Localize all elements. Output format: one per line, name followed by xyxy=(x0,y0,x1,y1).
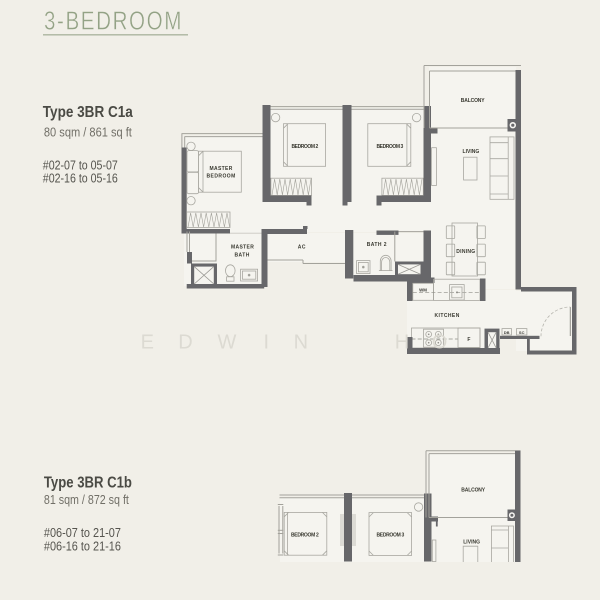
svg-text:BEDROOM 3: BEDROOM 3 xyxy=(377,144,404,150)
svg-text:I: I xyxy=(264,331,270,353)
svg-text:BEDROOM 3: BEDROOM 3 xyxy=(377,532,405,538)
svg-text:80 sqm / 861 sq ft: 80 sqm / 861 sq ft xyxy=(44,125,132,140)
svg-text:E: E xyxy=(141,331,154,353)
svg-text:N: N xyxy=(294,331,308,353)
svg-text:O: O xyxy=(432,331,448,353)
svg-text:BALCONY: BALCONY xyxy=(461,487,485,493)
svg-text:DINING: DINING xyxy=(456,249,475,255)
svg-text:BEDROOM 2: BEDROOM 2 xyxy=(291,532,319,538)
svg-text:81 sqm / 872 sq ft: 81 sqm / 872 sq ft xyxy=(44,492,129,507)
svg-text:DB: DB xyxy=(504,330,510,335)
svg-text:D: D xyxy=(178,331,192,353)
svg-text:BALCONY: BALCONY xyxy=(461,98,485,104)
svg-text:W: W xyxy=(218,331,237,353)
svg-text:H: H xyxy=(395,331,409,353)
svg-text:Type 3BR C1b: Type 3BR C1b xyxy=(44,475,132,492)
svg-text:#06-07 to 21-07: #06-07 to 21-07 xyxy=(44,526,121,540)
svg-text:BEDROOM: BEDROOM xyxy=(207,174,236,180)
svg-text:#02-16 to 05-16: #02-16 to 05-16 xyxy=(43,171,118,185)
svg-text:Type 3BR C1a: Type 3BR C1a xyxy=(43,104,133,121)
svg-text:3-BEDROOM: 3-BEDROOM xyxy=(44,5,183,35)
svg-text:KITCHEN: KITCHEN xyxy=(435,313,460,319)
svg-text:MASTER: MASTER xyxy=(231,245,254,251)
svg-text:#06-16 to 21-16: #06-16 to 21-16 xyxy=(44,540,121,554)
svg-text:AC: AC xyxy=(298,245,306,251)
svg-text:BEDROOM 2: BEDROOM 2 xyxy=(292,144,319,150)
svg-text:BATH: BATH xyxy=(235,253,250,259)
svg-text:LIVING: LIVING xyxy=(463,149,480,155)
svg-text:WM: WM xyxy=(419,287,427,292)
svg-text:MASTER: MASTER xyxy=(210,166,233,172)
svg-text:LIVING: LIVING xyxy=(463,540,480,546)
svg-text:BATH 2: BATH 2 xyxy=(367,242,387,248)
svg-text:F: F xyxy=(467,337,470,343)
svg-text:#02-07 to 05-07: #02-07 to 05-07 xyxy=(43,158,118,172)
svg-text:SC: SC xyxy=(519,330,525,335)
